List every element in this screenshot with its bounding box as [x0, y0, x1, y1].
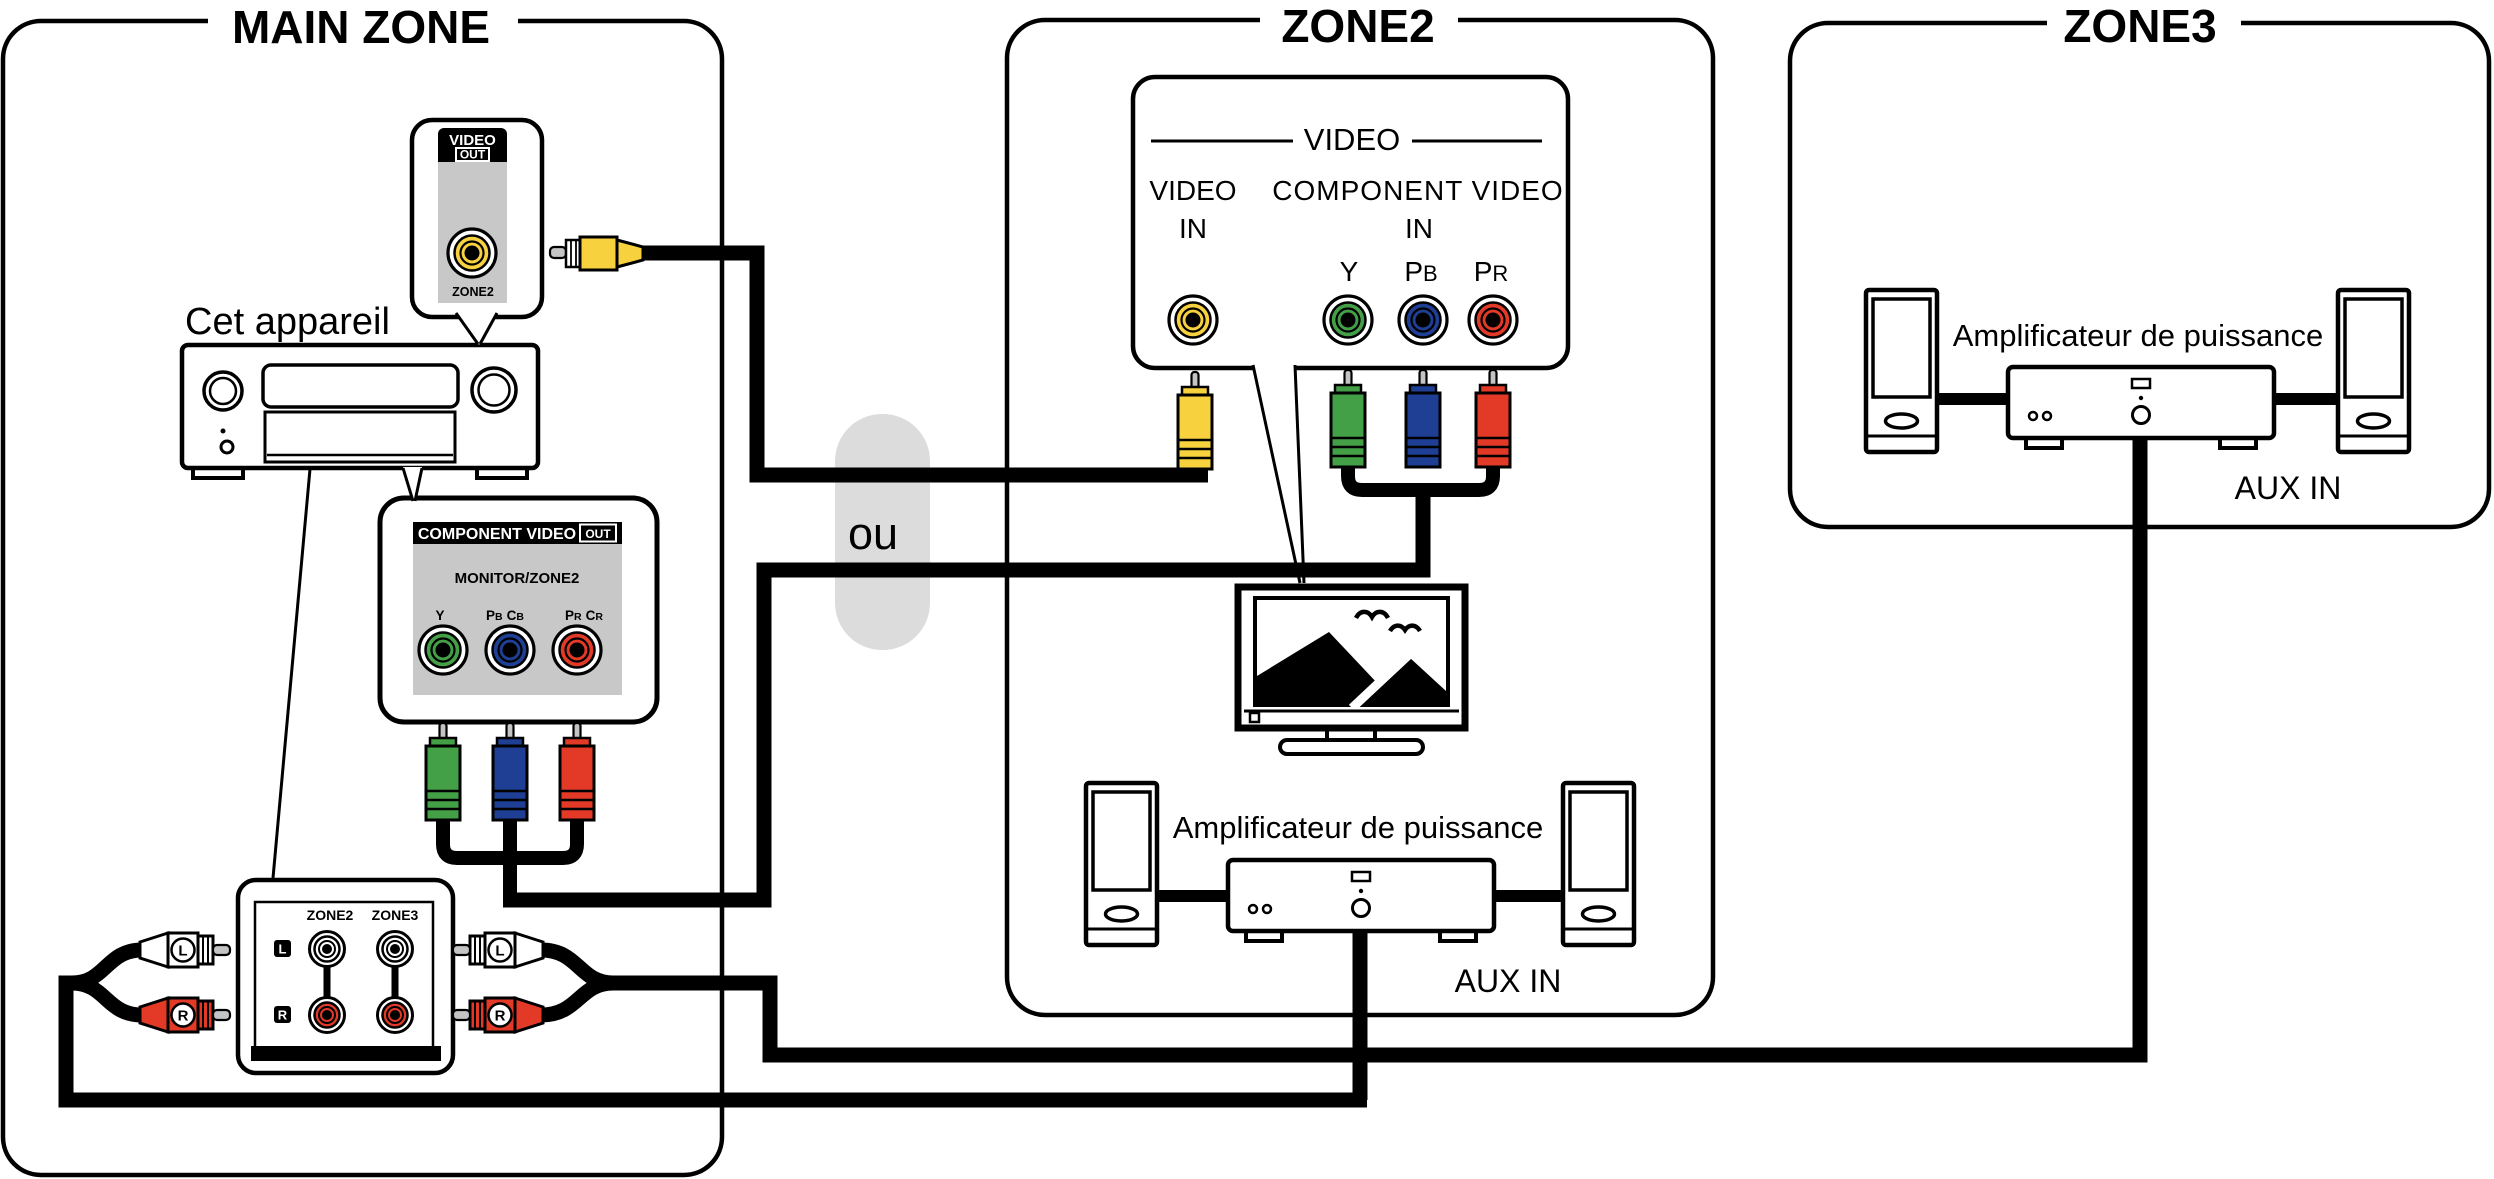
audio-jack-zone3-r	[378, 998, 413, 1033]
zone3-speaker-right	[2338, 290, 2409, 452]
zone2-speaker-right	[1563, 783, 1634, 945]
component-out-jack-y	[419, 626, 467, 674]
component-plug-blue-main	[493, 723, 527, 820]
video-out-jack-label: ZONE2	[452, 285, 494, 299]
zone3-title: ZONE3	[2063, 0, 2216, 52]
zone3-speaker-left	[1866, 290, 1937, 452]
y-in-label: Y	[1340, 256, 1359, 287]
audio-jack-zone2-r	[310, 998, 345, 1033]
component-out-jack-pr	[553, 626, 601, 674]
main-zone-title: MAIN ZONE	[232, 1, 490, 53]
component-plug-red-main	[560, 723, 594, 820]
audio-jack-zone3-l	[378, 932, 413, 967]
zone2-video-panel: VIDEO VIDEO IN COMPONENT VIDEO IN Y PB P…	[1133, 77, 1568, 584]
svg-text:R: R	[178, 1008, 189, 1025]
svg-text:R: R	[278, 1008, 288, 1023]
pb-in-label: PB	[1404, 256, 1437, 287]
composite-plug-zone2	[1178, 372, 1212, 469]
connection-diagram: MAIN ZONE ZONE2 ZONE3 Cet appareil VIDEO…	[0, 0, 2494, 1179]
zone2-video-header: VIDEO	[1304, 122, 1400, 157]
svg-text:R: R	[495, 1008, 506, 1025]
y-out-label: Y	[435, 608, 444, 623]
zone2-video-in-jack	[1169, 296, 1217, 344]
component-plug-red-zone2	[1476, 370, 1510, 467]
zone2-component-jack-pb	[1399, 296, 1447, 344]
component-out-header: COMPONENT VIDEO	[418, 526, 576, 543]
component-out-panel: COMPONENT VIDEO OUT MONITOR/ZONE2 Y PBCB…	[380, 467, 657, 722]
audio-col-zone2: ZONE2	[307, 907, 354, 923]
video-in-label: VIDEO	[1149, 175, 1236, 206]
audio-jack-zone2-l	[310, 932, 345, 967]
receiver-display	[263, 365, 458, 407]
zone2-title: ZONE2	[1281, 0, 1434, 52]
composite-plug-main	[550, 237, 643, 270]
svg-text:L: L	[279, 942, 287, 957]
svg-text:IN: IN	[1179, 213, 1207, 244]
audio-out-panel: ZONE2 ZONE3 L R	[238, 880, 453, 1073]
component-plug-blue-zone2	[1406, 370, 1440, 467]
zone3-amplifier	[2008, 367, 2274, 448]
device-label: Cet appareil	[185, 301, 390, 343]
svg-text:OUT: OUT	[460, 148, 486, 162]
tv-stand-base	[1280, 740, 1423, 754]
zone2-component-jack-y	[1324, 296, 1372, 344]
zone3-aux-in-label: AUX IN	[2235, 470, 2342, 506]
video-out-jack	[448, 229, 496, 277]
svg-text:IN: IN	[1405, 213, 1433, 244]
video-out-panel: VIDEO OUT ZONE2	[412, 120, 542, 345]
audio-col-zone3: ZONE3	[372, 907, 419, 923]
component-plug-green-zone2	[1331, 370, 1365, 467]
tv	[1238, 587, 1465, 754]
component-in-label: COMPONENT VIDEO	[1272, 175, 1563, 206]
zone2-amplifier-label: Amplificateur de puissance	[1173, 810, 1543, 845]
zone2-aux-in-label: AUX IN	[1455, 963, 1562, 999]
svg-text:L: L	[495, 943, 504, 960]
zone2-speaker-left	[1086, 783, 1157, 945]
monitor-zone2-label: MONITOR/ZONE2	[455, 570, 580, 587]
zone3-amplifier-label: Amplificateur de puissance	[1953, 318, 2323, 353]
callout-line-audio-panel	[273, 469, 310, 878]
or-label: ou	[848, 508, 898, 559]
zone2-component-jack-pr	[1469, 296, 1517, 344]
receiver	[182, 345, 538, 478]
component-out-jack-pb	[486, 626, 534, 674]
video-out-header: VIDEO	[449, 132, 496, 149]
component-plug-green-main	[426, 723, 460, 820]
svg-text:OUT: OUT	[585, 527, 611, 541]
zone2-amplifier	[1228, 860, 1494, 941]
svg-text:L: L	[178, 943, 187, 960]
pr-in-label: PR	[1474, 256, 1509, 287]
